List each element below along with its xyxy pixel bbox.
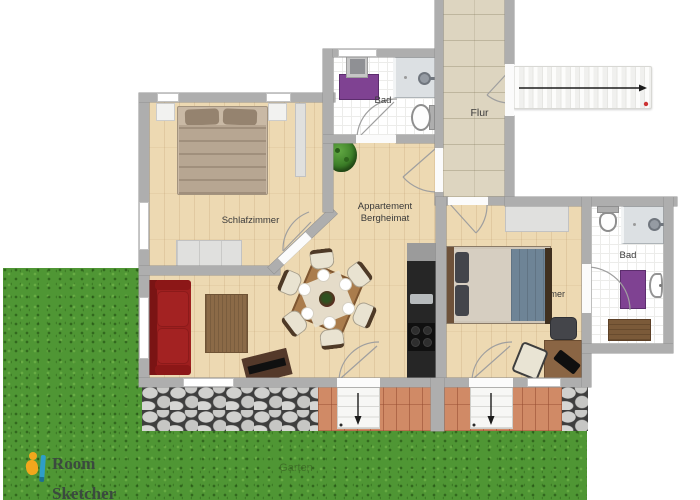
- stairs-arrowhead-icon: [639, 85, 647, 92]
- table-centerpiece: [319, 291, 335, 307]
- apartment-title: Appartement Bergheimat: [339, 201, 431, 224]
- window: [157, 93, 179, 102]
- plate-icon: [323, 316, 336, 329]
- terrace-arrowhead-right-icon: [488, 416, 495, 425]
- burner-icon: [411, 326, 420, 335]
- sofa-backrest: [148, 280, 157, 375]
- bed-double-left: [177, 106, 268, 195]
- shower-right: [621, 206, 664, 244]
- sink-icon: [350, 59, 365, 74]
- tv-icon: [247, 358, 286, 375]
- faucet-dot: [659, 284, 662, 287]
- wardrobe-right-bedroom: [505, 205, 569, 232]
- bed-double-right: [446, 246, 551, 324]
- kitchen-sink-icon: [410, 294, 433, 304]
- desk-chair: [550, 317, 577, 340]
- pillow: [455, 285, 469, 316]
- footboard: [545, 248, 552, 324]
- kitchen-upper-cabinet: [407, 243, 436, 261]
- logo-pencil-icon: [39, 455, 46, 482]
- terrace-door-left: [337, 378, 380, 387]
- stairs-red-dot-icon: [644, 102, 648, 106]
- wall: [505, 116, 514, 205]
- room-label-bedroom-left: Schlafzimmer: [203, 215, 298, 227]
- wall: [505, 197, 677, 206]
- pillow: [185, 108, 220, 125]
- bathroom-vanity: [346, 56, 368, 78]
- toilet-right: [597, 206, 619, 233]
- drain-dot: [404, 76, 407, 79]
- wall: [664, 197, 673, 353]
- room-label-hallway: Flur: [457, 107, 502, 119]
- dresser: [176, 240, 242, 267]
- terrace-arrowhead-left-icon: [355, 416, 362, 425]
- floorplan-canvas: Schlafzimmer: [0, 0, 700, 500]
- toilet-top: [411, 103, 435, 132]
- logo-word-room: Room: [52, 455, 95, 473]
- window: [139, 297, 149, 359]
- door-opening: [582, 264, 591, 313]
- blanket: [511, 249, 545, 321]
- window: [266, 93, 291, 102]
- window: [183, 378, 234, 387]
- wardrobe-left-bedroom: [295, 103, 306, 177]
- terrace-door-right: [469, 378, 513, 387]
- desk: [544, 340, 582, 382]
- room-label-bathroom-right: Bad: [608, 250, 648, 262]
- apartment-title-line2: Bergheimat: [339, 213, 431, 225]
- wall: [582, 344, 673, 353]
- wall: [505, 0, 514, 64]
- sofa-armrest: [155, 280, 191, 290]
- wall-terrace-divider: [431, 378, 444, 431]
- door-opening-stairs: [505, 64, 514, 116]
- shower-top: [393, 57, 436, 98]
- blanket: [179, 125, 266, 194]
- sofa: [148, 280, 191, 375]
- bath-bench: [608, 319, 651, 341]
- wall: [435, 0, 443, 148]
- logo-person-body-icon: [25, 459, 39, 476]
- cooktop-icon: [408, 323, 435, 351]
- laptop-icon: [553, 349, 581, 374]
- roomsketcher-logo: Room Sketcher: [20, 448, 150, 500]
- headboard: [447, 247, 454, 323]
- door-opening: [448, 197, 488, 205]
- burner-icon: [423, 338, 432, 347]
- burner-icon: [411, 338, 420, 347]
- room-label-bathroom-top: Bad: [363, 95, 403, 107]
- logo-person-head-icon: [29, 452, 37, 460]
- nightstand-left: [156, 103, 175, 121]
- apartment-title-line1: Appartement: [339, 201, 431, 213]
- washbasin-icon: [649, 273, 663, 298]
- sofa-armrest: [155, 365, 191, 375]
- logo-word-sketcher: Sketcher: [52, 485, 116, 500]
- dining-chair: [319, 328, 345, 351]
- kitchen-counter: [407, 243, 436, 383]
- plate-icon: [317, 269, 330, 282]
- door-opening: [435, 148, 443, 192]
- wall: [323, 135, 356, 143]
- wall: [436, 197, 446, 387]
- garden-label: Garten: [266, 462, 326, 474]
- nightstand-right: [268, 103, 287, 121]
- drain-dot: [633, 223, 636, 226]
- wall: [323, 49, 333, 212]
- door-opening: [356, 135, 396, 143]
- window: [527, 378, 561, 387]
- toilet-bowl-icon: [599, 212, 617, 232]
- sofa-cushion: [157, 291, 189, 327]
- toilet-bowl-icon: [411, 104, 431, 131]
- plant-leaf-dot: [344, 157, 349, 162]
- pillow: [455, 252, 469, 283]
- wall: [139, 266, 280, 275]
- terrace-dot-right-icon: [473, 424, 476, 427]
- terrace-dot-left-icon: [340, 424, 343, 427]
- burner-icon: [423, 326, 432, 335]
- sofa-cushion: [157, 328, 189, 364]
- window: [139, 202, 149, 250]
- window: [338, 49, 377, 57]
- plant-leaf-dot: [335, 148, 340, 153]
- pillow: [223, 108, 258, 125]
